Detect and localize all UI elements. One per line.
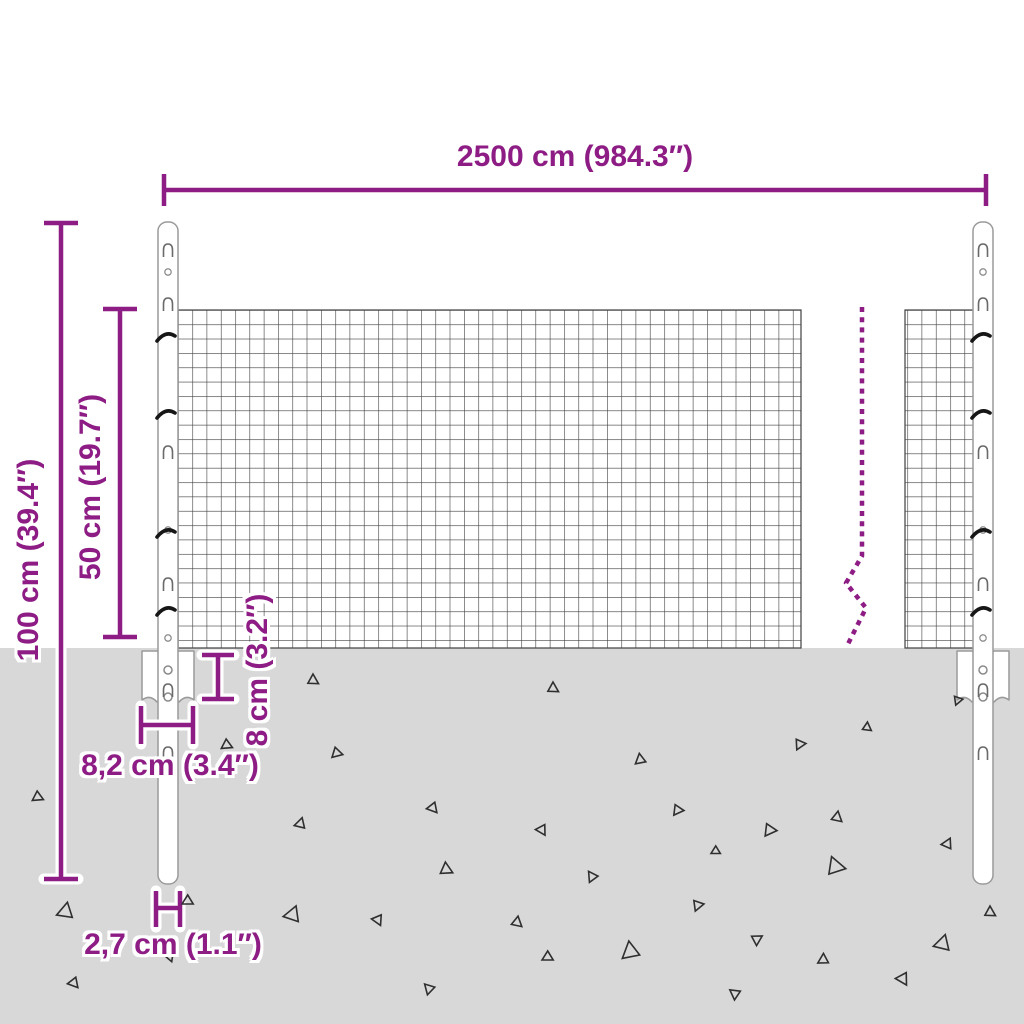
gravel-triangle <box>439 861 452 873</box>
plate-hole <box>164 693 172 701</box>
gravel-triangle <box>824 853 846 874</box>
gravel-triangle <box>511 915 523 926</box>
fence-post-left <box>158 222 178 884</box>
gravel-triangle <box>32 791 45 805</box>
fence-post-right <box>973 222 993 884</box>
gravel-triangle <box>548 682 559 692</box>
gravel-triangle <box>616 941 640 965</box>
gravel-triangle <box>332 747 344 760</box>
gravel-triangle <box>831 810 843 821</box>
gravel-triangle <box>422 984 435 996</box>
fence-dimension-diagram: 2500 cm (984.3″) 100 cm (39.4″) 50 cm (1… <box>0 0 1024 1024</box>
gravel-triangle <box>308 674 319 684</box>
gravel-triangle <box>796 738 807 749</box>
plate-hole <box>979 693 987 701</box>
dimension-label-total-width: 2500 cm (984.3″) <box>457 140 693 174</box>
dimension-label-post-diameter: 2,7 cm (1.1″) <box>84 928 262 962</box>
gravel-triangle <box>674 805 685 816</box>
gravel-triangle <box>584 871 598 884</box>
break-dashed-line <box>846 307 866 644</box>
gravel-triangle <box>765 824 777 837</box>
gravel-triangle <box>931 935 949 954</box>
gravel-triangle <box>751 932 765 946</box>
gravel-triangle <box>371 914 385 927</box>
post-hole <box>980 269 986 275</box>
wire-mesh-panel-right <box>905 310 983 648</box>
gravel-triangle <box>815 953 829 967</box>
gravel-triangle <box>895 972 911 988</box>
gravel-triangle <box>693 899 704 911</box>
gravel-triangle <box>862 722 872 731</box>
plate-hole <box>164 666 172 674</box>
post-hole <box>980 635 986 641</box>
gravel-triangle <box>632 753 646 767</box>
gravel-triangle <box>282 906 299 924</box>
dimension-label-anchor-height: 8 cm (3.2″) <box>241 594 275 747</box>
gravel-triangle <box>293 818 305 831</box>
gravel-triangle <box>729 990 740 1001</box>
gravel-triangle <box>535 824 549 838</box>
dimension-label-total-height: 100 cm (39.4″) <box>12 459 46 662</box>
post-hole <box>165 635 171 641</box>
gravel-triangle <box>67 977 81 991</box>
gravel-triangle <box>542 951 556 965</box>
plate-hole <box>979 666 987 674</box>
dimension-label-mesh-height: 50 cm (19.7″) <box>74 394 108 580</box>
gravel-triangle <box>941 838 952 849</box>
gravel-triangle <box>711 846 722 858</box>
dimension-label-anchor-width: 8,2 cm (3.4″) <box>81 749 259 783</box>
post-hole <box>165 269 171 275</box>
gravel-triangle <box>985 906 996 916</box>
gravel-triangle <box>54 902 73 922</box>
gravel-triangle <box>426 802 440 816</box>
